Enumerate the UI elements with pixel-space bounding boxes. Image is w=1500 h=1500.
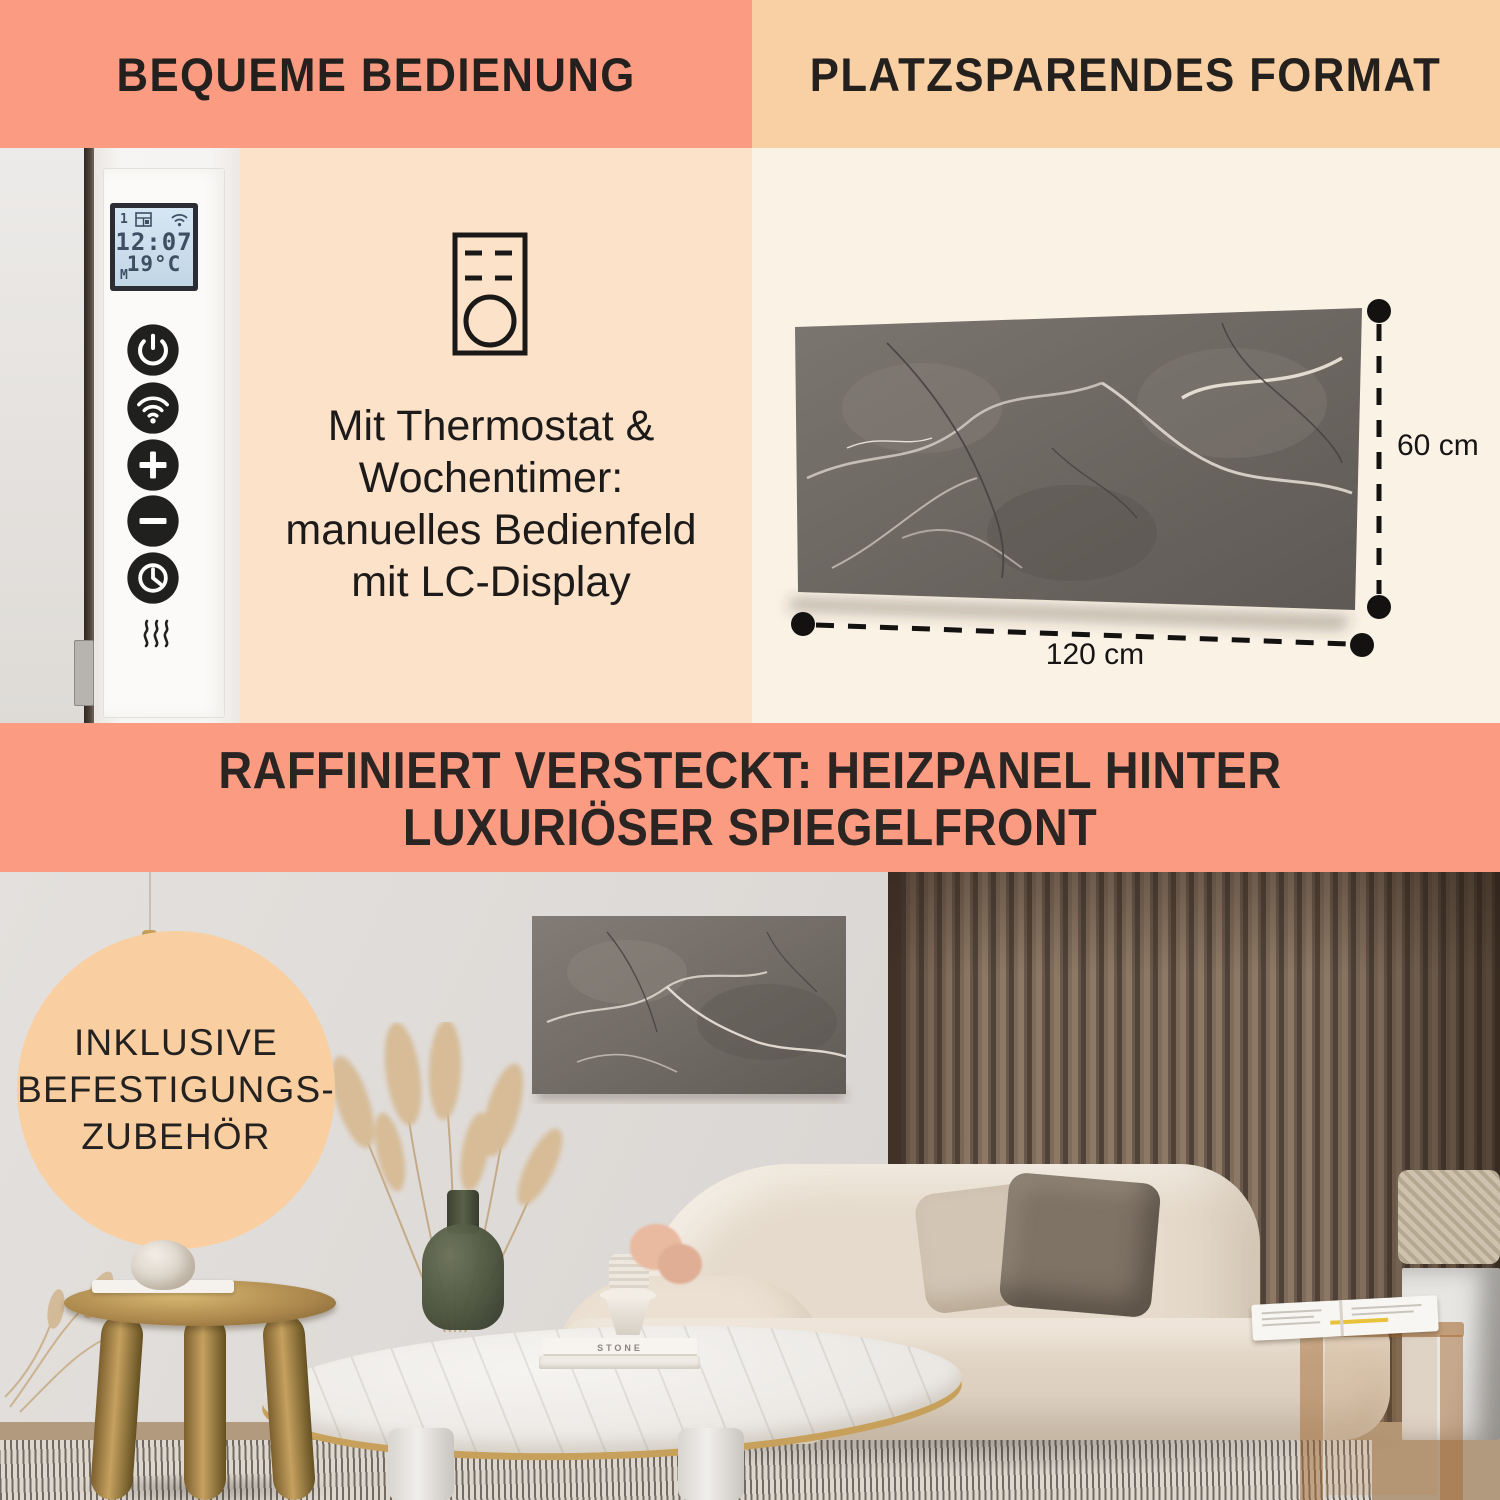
lcd-day-value: 1: [120, 212, 128, 227]
green-glass-vase: [422, 1224, 504, 1330]
height-dimension-line: [1367, 299, 1391, 619]
calendar-icon: [135, 212, 152, 227]
coffee-table-leg: [388, 1428, 454, 1500]
header-right-band: PLATZSPARENDES FORMAT: [752, 0, 1500, 148]
lcd-mode-value: M: [120, 268, 128, 283]
accessories-badge: INKLUSIVE BEFESTIGUNGS- ZUBEHÖR: [17, 931, 335, 1249]
white-textured-vase: [131, 1240, 195, 1290]
badge-line-2: BEFESTIGUNGS-: [17, 1066, 335, 1113]
coffee-table-leg: [678, 1428, 744, 1500]
header-left-band: BEQUEME BEDIENUNG: [0, 0, 752, 148]
sofa-pillow-dark: [998, 1172, 1161, 1319]
header-right-title: PLATZSPARENDES FORMAT: [810, 47, 1442, 102]
sofa-pillow-woven: [1398, 1170, 1500, 1264]
feature-text-line: mit LC-Display: [235, 556, 747, 608]
feature-text-line: Wochentimer:: [235, 452, 747, 504]
feature-control-section: 1 12:07 19°C M: [0, 148, 752, 723]
power-button-icon: [126, 323, 180, 377]
height-dimension-label: 60 cm: [1397, 429, 1479, 463]
badge-line-3: ZUBEHÖR: [17, 1113, 335, 1160]
feature-text-block: Mit Thermostat & Wochentimer: manuelles …: [235, 400, 747, 608]
indicator-dot: [152, 594, 161, 603]
product-infographic: BEQUEME BEDIENUNG PLATZSPARENDES FORMAT …: [0, 0, 1500, 1500]
decor-book: [539, 1356, 700, 1369]
dried-bloom: [658, 1244, 702, 1284]
feature-text-line: manuelles Bedienfeld: [235, 504, 747, 556]
width-dimension-label: 120 cm: [1035, 638, 1155, 672]
banner-line-1: RAFFINIERT VERSTECKT: HEIZPANEL HINTER: [75, 743, 1425, 800]
acrylic-stool-leg: [1300, 1335, 1323, 1500]
control-panel-photo: 1 12:07 19°C M: [0, 148, 240, 723]
middle-banner: RAFFINIERT VERSTECKT: HEIZPANEL HINTER L…: [0, 723, 1500, 872]
header-left-title: BEQUEME BEDIENUNG: [116, 47, 635, 102]
plus-button-icon: [126, 438, 180, 492]
book-spine-label: STONE: [597, 1343, 643, 1353]
pendant-cord: [149, 872, 151, 932]
mounting-bracket: [74, 640, 94, 706]
panel-dimension-figure: [752, 148, 1500, 723]
device-edge: [84, 148, 94, 723]
minus-button-icon: [126, 494, 180, 548]
banner-line-2: LUXURIÖSER SPIEGELFRONT: [75, 800, 1425, 857]
remote-control-icon: [452, 232, 528, 356]
heat-indicator-icon: [136, 616, 176, 650]
acrylic-stool-body: [1325, 1335, 1437, 1495]
badge-line-1: INKLUSIVE: [17, 1019, 335, 1066]
acrylic-stool-leg: [1440, 1335, 1463, 1500]
wifi-button-icon: [126, 381, 180, 435]
side-table-leg: [184, 1314, 226, 1500]
feature-format-section: 60 cm 120 cm: [752, 148, 1500, 723]
feature-text-line: Mit Thermostat &: [235, 400, 747, 452]
decor-book: STONE: [543, 1338, 697, 1356]
wifi-status-icon: [170, 212, 189, 227]
living-room-scene: INKLUSIVE BEFESTIGUNGS- ZUBEHÖR: [0, 872, 1500, 1500]
lcd-display: 1 12:07 19°C M: [115, 208, 193, 286]
